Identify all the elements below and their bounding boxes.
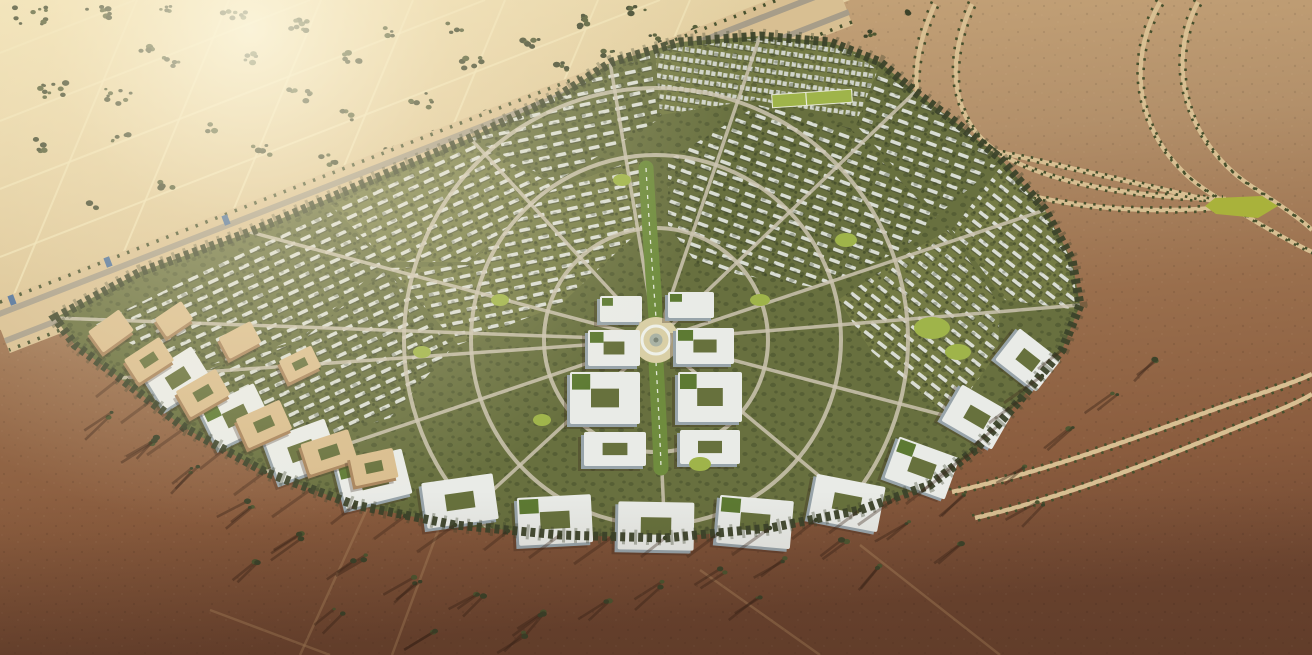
aerial-masterplan-render: [0, 0, 1312, 655]
render-canvas: [0, 0, 1312, 655]
bottom-vignette: [0, 0, 1312, 655]
